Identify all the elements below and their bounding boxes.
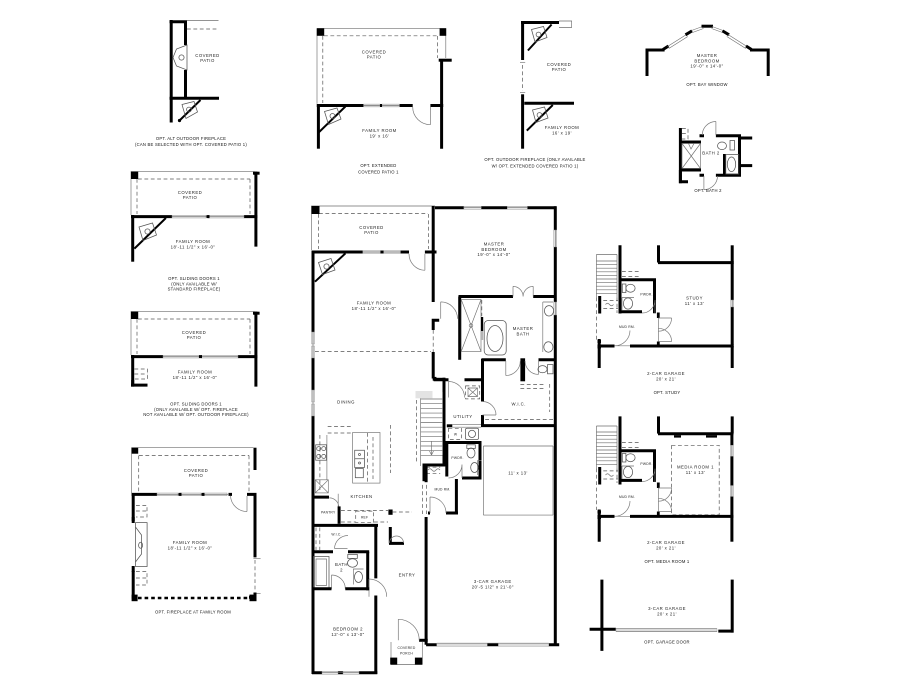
svg-text:MUD RM.: MUD RM. <box>434 488 450 492</box>
svg-text:18'-11 1/2" x 16'-0": 18'-11 1/2" x 16'-0" <box>171 244 216 249</box>
svg-text:MUD RM.: MUD RM. <box>619 495 635 499</box>
svg-text:19' x 16': 19' x 16' <box>370 133 390 138</box>
svg-text:(ONLY AVAILABLE W/ OPT. FIREPL: (ONLY AVAILABLE W/ OPT. FIREPLACE <box>154 407 238 412</box>
svg-text:BEDROOM: BEDROOM <box>481 247 506 252</box>
svg-text:PWDR.: PWDR. <box>640 462 652 466</box>
svg-text:OPT. SLIDING DOORS 1: OPT. SLIDING DOORS 1 <box>170 402 222 407</box>
svg-text:20' x 21': 20' x 21' <box>657 611 677 616</box>
svg-text:OPT. BATH 2: OPT. BATH 2 <box>694 188 722 193</box>
svg-text:MUD RM.: MUD RM. <box>619 325 635 329</box>
svg-text:MASTER: MASTER <box>513 326 534 331</box>
svg-text:DINING: DINING <box>337 400 355 405</box>
svg-text:19'-0" x 14'-0": 19'-0" x 14'-0" <box>477 252 510 257</box>
svg-text:OPT. FIREPLACE AT FAMILY ROOM: OPT. FIREPLACE AT FAMILY ROOM <box>155 610 231 615</box>
svg-text:2-CAR GARAGE: 2-CAR GARAGE <box>647 371 685 376</box>
svg-text:FAMILY ROOM: FAMILY ROOM <box>545 125 579 130</box>
svg-text:ENTRY: ENTRY <box>399 573 416 578</box>
svg-text:REF: REF <box>361 516 368 520</box>
svg-text:FAMILY ROOM: FAMILY ROOM <box>357 301 391 306</box>
svg-text:BATH: BATH <box>517 331 530 336</box>
svg-text:11' x 13': 11' x 13' <box>685 301 704 306</box>
svg-text:2: 2 <box>340 567 343 572</box>
svg-text:W.I.C.: W.I.C. <box>511 402 525 407</box>
svg-text:BEDROOM 2: BEDROOM 2 <box>333 627 363 632</box>
svg-text:3-CAR GARAGE: 3-CAR GARAGE <box>648 606 686 611</box>
svg-text:18'-11 1/2" x 16'-0": 18'-11 1/2" x 16'-0" <box>168 545 213 550</box>
svg-text:3-CAR GARAGE: 3-CAR GARAGE <box>474 579 512 584</box>
svg-text:OPT. ALT OUTDOOR FIREPLACE: OPT. ALT OUTDOOR FIREPLACE <box>156 136 226 141</box>
svg-text:OPT. MEDIA ROOM 1: OPT. MEDIA ROOM 1 <box>645 559 690 564</box>
svg-text:20' x 21': 20' x 21' <box>656 376 676 381</box>
svg-text:PATIO: PATIO <box>364 230 379 235</box>
svg-text:COVERED: COVERED <box>398 646 416 650</box>
svg-text:OPT. EXTENDED: OPT. EXTENDED <box>360 163 396 168</box>
svg-text:OPT. SLIDING DOORS 1: OPT. SLIDING DOORS 1 <box>168 276 220 281</box>
svg-text:PATIO: PATIO <box>552 67 567 72</box>
svg-text:PATIO: PATIO <box>189 473 204 478</box>
svg-text:MEDIA ROOM 1: MEDIA ROOM 1 <box>677 465 714 470</box>
svg-text:18'-11 1/2" x 16'-0": 18'-11 1/2" x 16'-0" <box>352 306 397 311</box>
svg-text:KITCHEN: KITCHEN <box>350 494 372 499</box>
svg-text:W/ OPT. EXTENDED COVERED PATIO: W/ OPT. EXTENDED COVERED PATIO 1) <box>492 164 579 169</box>
svg-text:PWDR.: PWDR. <box>640 293 652 297</box>
svg-text:16' x 19': 16' x 19' <box>552 130 572 135</box>
svg-text:FAMILY ROOM: FAMILY ROOM <box>173 540 207 545</box>
svg-text:MASTER: MASTER <box>697 53 718 58</box>
svg-text:FAMILY ROOM: FAMILY ROOM <box>178 370 212 375</box>
svg-text:PATIO: PATIO <box>187 335 202 340</box>
svg-text:2-CAR GARAGE: 2-CAR GARAGE <box>647 540 685 545</box>
svg-text:PATIO: PATIO <box>200 58 215 63</box>
svg-text:UTILITY: UTILITY <box>453 414 472 419</box>
svg-text:19'-0" x 14'-0": 19'-0" x 14'-0" <box>690 64 723 69</box>
svg-text:BATH: BATH <box>335 562 348 567</box>
svg-text:FAMILY ROOM: FAMILY ROOM <box>362 128 396 133</box>
svg-text:STUDY: STUDY <box>686 296 703 301</box>
svg-text:COVERED PATIO 1: COVERED PATIO 1 <box>358 170 399 175</box>
svg-text:FAMILY ROOM: FAMILY ROOM <box>176 239 210 244</box>
svg-text:11' x 13': 11' x 13' <box>508 471 527 476</box>
svg-text:12'-0" x 13'-0": 12'-0" x 13'-0" <box>331 632 364 637</box>
svg-text:(CAN BE SELECTED WITH OPT. COV: (CAN BE SELECTED WITH OPT. COVERED PATIO… <box>135 142 247 147</box>
svg-text:OPT. STUDY: OPT. STUDY <box>654 390 681 395</box>
svg-text:BATH 2: BATH 2 <box>702 151 720 156</box>
svg-text:OPT. BAY WINDOW: OPT. BAY WINDOW <box>686 82 727 87</box>
svg-text:20' x 21': 20' x 21' <box>656 545 676 550</box>
svg-text:18'-11 1/2" x 16'-0": 18'-11 1/2" x 16'-0" <box>173 375 218 380</box>
svg-text:20'-5 1/2" x 21'-0": 20'-5 1/2" x 21'-0" <box>472 584 514 589</box>
svg-text:NOT AVAILABLE W/ OPT. OUTDOOR: NOT AVAILABLE W/ OPT. OUTDOOR FIREPLACE) <box>143 412 249 417</box>
svg-text:OPT. OUTDOOR FIREPLACE (ONLY A: OPT. OUTDOOR FIREPLACE (ONLY AVAILABLE <box>484 157 585 162</box>
svg-text:PATIO: PATIO <box>367 55 382 60</box>
svg-text:11' x 13': 11' x 13' <box>686 470 705 475</box>
svg-text:PATIO: PATIO <box>183 195 198 200</box>
svg-text:PANTRY: PANTRY <box>321 511 336 515</box>
svg-text:MASTER: MASTER <box>484 242 505 247</box>
svg-text:W.I.C.: W.I.C. <box>331 533 341 537</box>
svg-text:PORCH: PORCH <box>400 651 413 655</box>
svg-text:(ONLY AVAILABLE W/: (ONLY AVAILABLE W/ <box>171 281 217 286</box>
svg-text:BEDROOM: BEDROOM <box>694 58 719 63</box>
svg-text:PWDR.: PWDR. <box>451 456 463 460</box>
svg-text:OPT. GARAGE DOOR: OPT. GARAGE DOOR <box>644 640 690 645</box>
svg-text:STANDARD FIREPLACE): STANDARD FIREPLACE) <box>168 287 221 292</box>
